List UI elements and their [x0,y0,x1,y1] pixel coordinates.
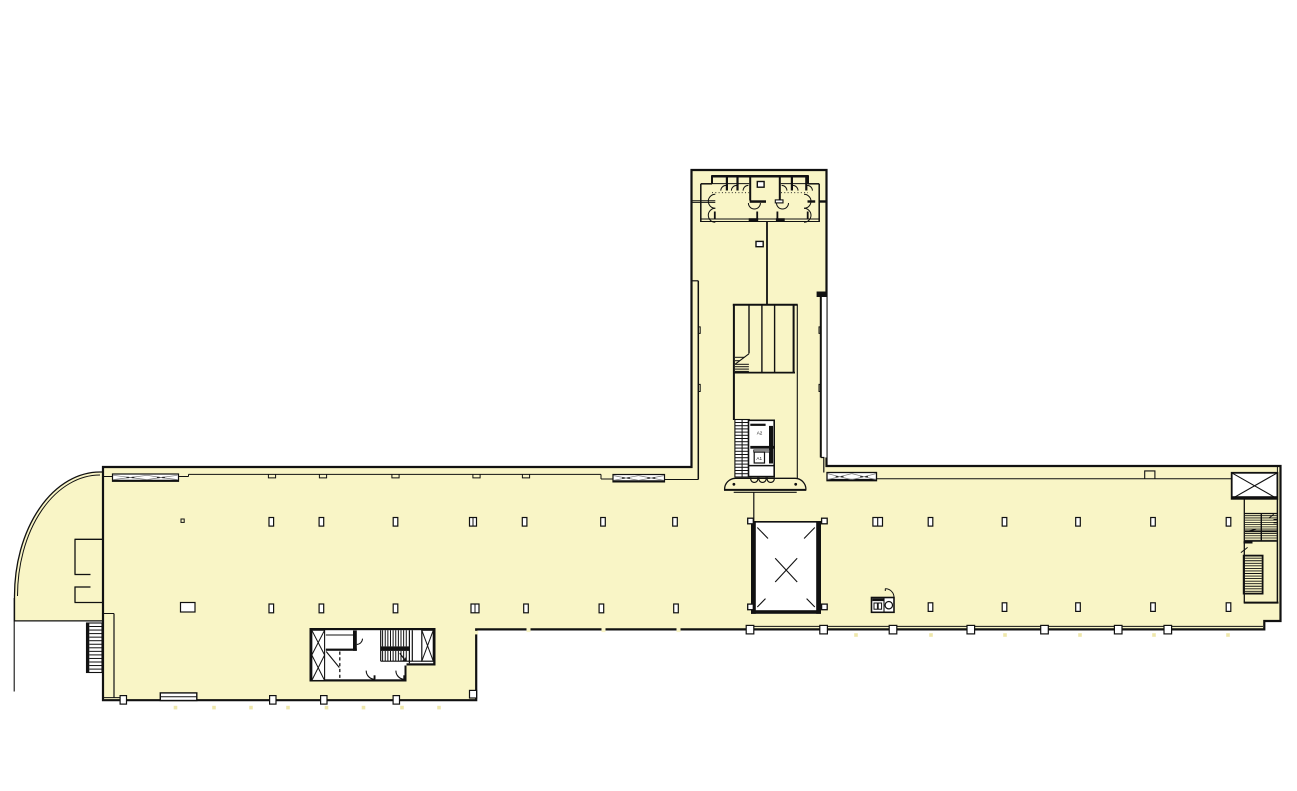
svg-text:A1: A1 [756,456,762,461]
svg-text:A2: A2 [757,431,763,436]
